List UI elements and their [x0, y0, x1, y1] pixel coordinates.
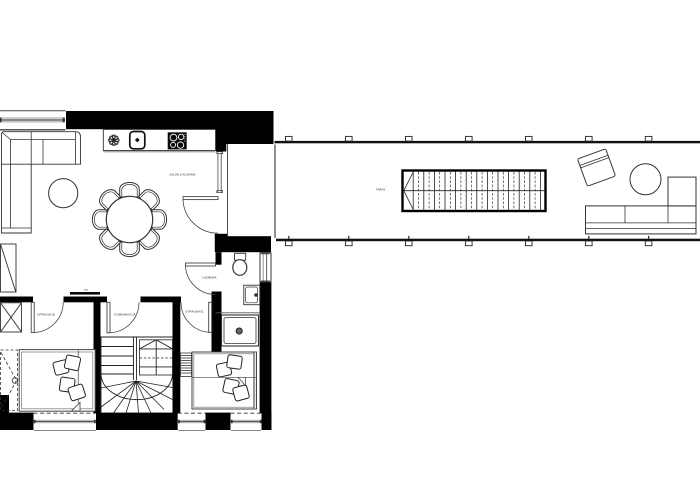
- svg-text:TARAS: TARAS: [376, 187, 385, 191]
- svg-text:ŁAZIENKA: ŁAZIENKA: [203, 275, 217, 279]
- svg-text:SALON Z KUCHNIA: SALON Z KUCHNIA: [169, 172, 195, 176]
- svg-text:TV: TV: [84, 288, 88, 292]
- svg-text:SYPIALNIA 02: SYPIALNIA 02: [37, 312, 56, 316]
- svg-text:KOMUNIKACJA: KOMUNIKACJA: [115, 313, 136, 317]
- svg-text:SYPIALNIA 01: SYPIALNIA 01: [185, 309, 204, 313]
